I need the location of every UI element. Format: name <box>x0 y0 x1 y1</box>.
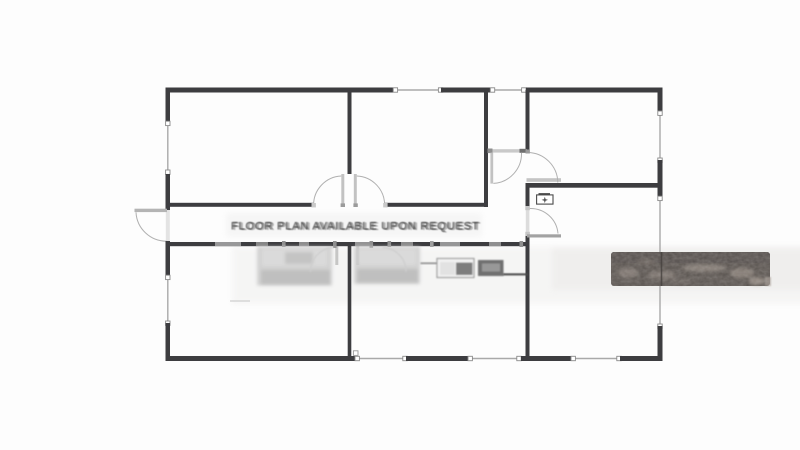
svg-text:FLOOR PLAN AVAILABLE UPON REQU: FLOOR PLAN AVAILABLE UPON REQUEST <box>231 221 479 233</box>
